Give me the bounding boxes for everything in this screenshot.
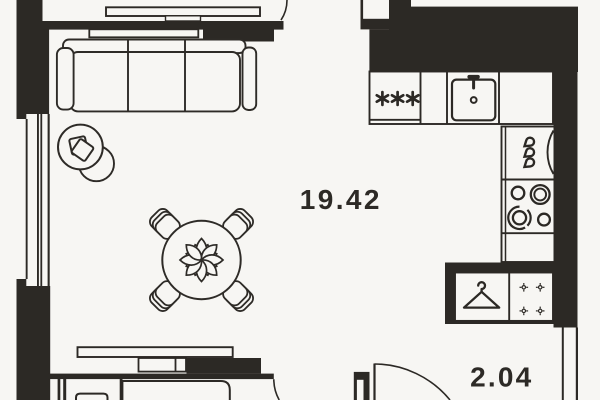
svg-text:19.42: 19.42 [300, 184, 382, 215]
svg-text:2.04: 2.04 [470, 362, 533, 393]
